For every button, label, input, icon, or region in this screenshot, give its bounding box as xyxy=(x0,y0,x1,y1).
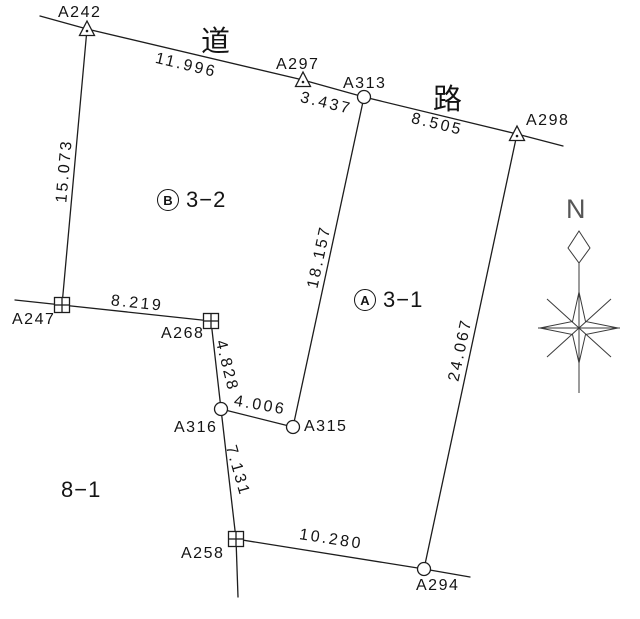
point-label-a242: A242 xyxy=(58,4,101,22)
parcel-number-3-2: 3−2 xyxy=(186,187,226,213)
point-label-a258: A258 xyxy=(181,545,224,563)
triangle-marker-a242 xyxy=(80,21,95,36)
boundary-a298-a294 xyxy=(424,134,517,569)
point-label-a313: A313 xyxy=(343,75,386,93)
parcel-label-3-1: A 3−1 xyxy=(354,287,423,313)
square-marker-a247 xyxy=(55,298,70,313)
road-label-char-1: 道 xyxy=(201,18,230,60)
road-label-char-2: 路 xyxy=(433,76,462,118)
survey-map: A242 A297 A313 A298 A247 A268 A316 A315 … xyxy=(0,0,640,619)
point-label-a316: A316 xyxy=(174,419,217,437)
square-marker-a258 xyxy=(229,532,244,547)
circle-marker-a316 xyxy=(215,403,228,416)
parcel-number-8-1: 8−1 xyxy=(61,477,101,503)
parcel-letter-badge-b: B xyxy=(157,189,179,211)
point-label-a247: A247 xyxy=(12,311,55,329)
compass-north-label: N xyxy=(566,194,586,225)
circle-marker-a294 xyxy=(418,563,431,576)
compass-kite xyxy=(568,231,590,263)
parcel-label-8-1: 8−1 xyxy=(61,477,101,503)
point-label-a297: A297 xyxy=(276,56,319,74)
point-label-a315: A315 xyxy=(304,418,347,436)
point-label-a298: A298 xyxy=(526,112,569,130)
boundary-a313-a315 xyxy=(293,97,364,427)
parcel-label-3-2: B 3−2 xyxy=(157,187,226,213)
point-label-a294: A294 xyxy=(416,577,459,595)
boundary-a258-south-ext xyxy=(236,539,238,597)
point-label-a268: A268 xyxy=(161,325,204,343)
boundary-lines xyxy=(15,16,563,597)
parcel-number-3-1: 3−1 xyxy=(383,287,423,313)
circle-marker-a315 xyxy=(287,421,300,434)
square-marker-a268 xyxy=(204,314,219,329)
compass-rose-icon xyxy=(538,231,620,393)
parcel-letter-badge-a: A xyxy=(354,289,376,311)
